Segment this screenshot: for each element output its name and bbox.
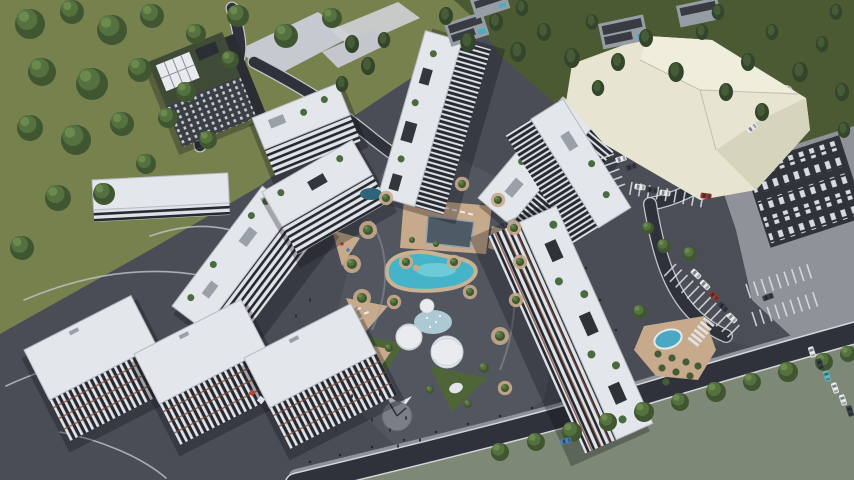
round-tree [10, 236, 34, 260]
conifer-tree [378, 32, 390, 48]
pedestrian [351, 394, 353, 397]
conifer-tree [489, 13, 503, 31]
round-tree [158, 108, 178, 128]
street-tree [634, 402, 654, 422]
conifer-tree [755, 103, 769, 121]
conifer-tree [439, 7, 453, 25]
courtyard-tree [347, 259, 357, 269]
courtyard-tree [464, 400, 472, 408]
bollard [435, 431, 437, 433]
round-tree [60, 0, 84, 24]
bollard [615, 329, 617, 331]
base-pool [360, 188, 382, 200]
conifer-tree [792, 62, 808, 82]
round-tree [186, 24, 206, 44]
pedestrian [343, 408, 345, 411]
street-tree [706, 382, 726, 402]
garden-bush [682, 358, 689, 365]
round-tree [93, 183, 115, 205]
garden-bush [662, 378, 669, 385]
street-tree [657, 239, 671, 253]
bollard [531, 407, 533, 409]
garden-bush [686, 372, 693, 379]
conifer-tree [696, 24, 708, 40]
conifer-tree [741, 53, 755, 71]
conifer-tree [712, 4, 724, 20]
round-tree [15, 9, 45, 39]
pedestrian [319, 416, 321, 419]
lagoon-island [413, 265, 419, 271]
round-tree [176, 82, 196, 102]
conifer-tree [830, 4, 842, 20]
round-tree [274, 24, 298, 48]
pedestrian [335, 428, 337, 431]
courtyard-tree [479, 363, 489, 373]
play-equip-blue [346, 248, 350, 252]
courtyard-tree [385, 344, 393, 352]
courtyard-tree [458, 180, 466, 188]
round-tree [221, 51, 239, 69]
courtyard-tree [495, 331, 505, 341]
round-tree [110, 112, 134, 136]
pedestrian [405, 416, 407, 419]
courtyard-tree [494, 196, 502, 204]
pedestrian [295, 314, 297, 317]
round-tree [45, 185, 71, 211]
pedestrian [371, 418, 373, 421]
round-tree [199, 131, 217, 149]
bollard [585, 267, 587, 269]
conifer-tree [361, 57, 375, 75]
pedestrian [397, 444, 399, 447]
bollard [559, 399, 561, 401]
pedestrian [389, 428, 391, 431]
conifer-tree [639, 29, 653, 47]
round-tree [61, 125, 91, 155]
street-tree [642, 222, 654, 234]
pedestrian [379, 392, 381, 395]
round-tree [322, 8, 342, 28]
conifer-tree [345, 35, 359, 53]
aerial-render [0, 0, 854, 480]
conifer-tree [592, 80, 604, 96]
courtyard-tree [382, 194, 390, 202]
conifer-tree [460, 32, 476, 52]
round-tree [97, 15, 127, 45]
bollard [467, 423, 469, 425]
conifer-tree [564, 48, 580, 68]
courtyard-tree [402, 258, 410, 266]
pedestrian [359, 402, 361, 405]
conifer-tree [586, 14, 598, 30]
street-tree [633, 305, 647, 319]
pedestrian [419, 438, 421, 441]
round-tree [76, 68, 108, 100]
courtyard-tree [510, 224, 518, 232]
courtyard-tree [516, 258, 524, 266]
courtyard-tree [409, 237, 415, 243]
garden-bush [694, 362, 701, 369]
conifer-tree [835, 83, 849, 101]
conifer-tree [838, 122, 850, 138]
round-tree [227, 5, 249, 27]
street-tree [599, 413, 617, 431]
courtyard-tree [426, 386, 434, 394]
garden-bush [654, 350, 661, 357]
conifer-tree [611, 53, 625, 71]
conifer-tree [537, 23, 551, 41]
street-tree [527, 433, 545, 451]
courtyard-tree [433, 241, 439, 247]
bollard [371, 446, 373, 448]
street-tree [491, 443, 509, 461]
courtyard-tree [363, 225, 373, 235]
courtyard-tree [466, 288, 474, 296]
street-tree [683, 247, 697, 261]
conifer-tree [719, 83, 733, 101]
courtyard-tree [390, 298, 398, 306]
street-tree [671, 393, 689, 411]
round-tree [17, 115, 43, 141]
bollard [309, 461, 311, 463]
garden-bush [668, 354, 675, 361]
bollard [599, 299, 601, 301]
pedestrian [309, 298, 311, 301]
garden-bush [658, 364, 665, 371]
bollard [403, 439, 405, 441]
round-tree [136, 154, 156, 174]
courtyard-tree [357, 293, 367, 303]
bollard [339, 454, 341, 456]
street-tree [778, 362, 798, 382]
courtyard-tree [512, 296, 520, 304]
conifer-tree [816, 36, 828, 52]
garden-bush [672, 368, 679, 375]
round-tree [28, 58, 56, 86]
conifer-tree [668, 62, 684, 82]
round-tree [140, 4, 164, 28]
courtyard-tree [450, 258, 458, 266]
bollard [499, 415, 501, 417]
conifer-tree [336, 76, 348, 92]
street-tree [743, 373, 761, 391]
courtyard-tree [501, 384, 509, 392]
render-stage [0, 0, 854, 480]
conifer-tree [766, 24, 778, 40]
conifer-tree [516, 0, 528, 16]
conifer-tree [510, 42, 526, 62]
round-tree [128, 58, 152, 82]
